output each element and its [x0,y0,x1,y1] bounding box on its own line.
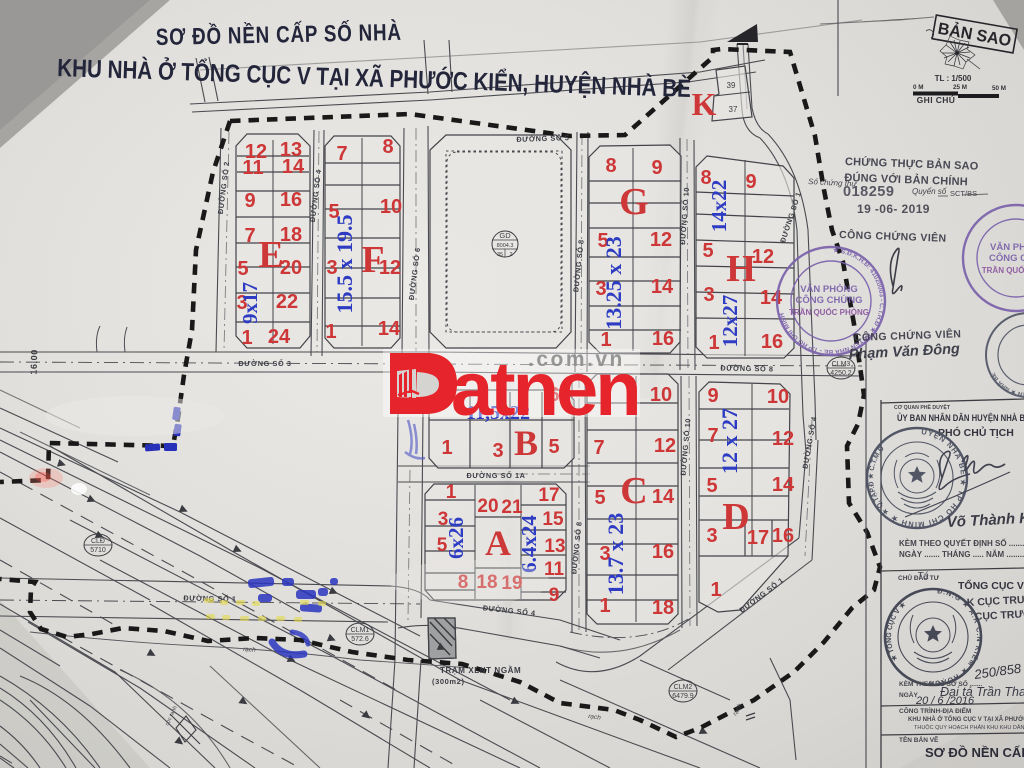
svg-text:CLM3: CLM3 [832,361,851,368]
svg-text:VĂN PHÒNG: VĂN PHÒNG [800,283,858,295]
svg-text:17: 17 [747,527,769,549]
svg-text:5: 5 [702,240,713,262]
svg-text:TỔNG CỤC V: TỔNG CỤC V [958,579,1024,592]
svg-text:TRẦN QUỐC PHÒNG: TRẦN QUỐC PHÒNG [789,307,869,317]
svg-text:8: 8 [605,155,616,177]
svg-text:E: E [258,234,283,276]
svg-text:3: 3 [703,284,714,306]
svg-text:SƠ ĐỒ NỀN CẤP SỐ NHÀ: SƠ ĐỒ NỀN CẤP SỐ NHÀ [156,18,403,50]
svg-text:9: 9 [651,157,662,179]
svg-text:16: 16 [280,189,302,211]
svg-text:CLĐ: CLĐ [91,538,105,545]
svg-text:8: 8 [382,136,393,158]
svg-text:12: 12 [772,428,794,450]
svg-text:0 M: 0 M [913,84,924,91]
svg-text:13.7 x 23: 13.7 x 23 [603,513,628,596]
svg-text:10: 10 [380,196,402,218]
svg-text:2: 2 [509,252,512,258]
svg-text:G: G [619,181,649,223]
svg-text:6x26: 6x26 [444,517,468,559]
svg-text:14: 14 [772,474,795,496]
svg-text:TRẠM XLNT NGẦM: TRẠM XLNT NGẦM [440,665,521,675]
svg-text:TRẦN QUỐC: TRẦN QUỐC [982,265,1024,275]
svg-text:5: 5 [548,436,559,458]
svg-text:18: 18 [652,597,674,619]
svg-text:12: 12 [654,435,676,457]
svg-text:CÔNG C: CÔNG C [989,252,1024,264]
svg-text:CLM1: CLM1 [351,627,370,634]
svg-text:9: 9 [707,385,718,407]
svg-text:6.4x24: 6.4x24 [517,515,541,573]
svg-text:9: 9 [549,585,560,606]
svg-text:4250.2: 4250.2 [830,370,852,377]
svg-text:17: 17 [538,485,559,506]
svg-text:9: 9 [244,190,255,212]
svg-text:19 -06- 2019: 19 -06- 2019 [857,202,930,216]
svg-text:ĐƯỜNG SỐ 1A: ĐƯỜNG SỐ 1A [466,470,525,480]
svg-text:KHU NHÀ Ở TỔNG CỤC V TẠI XÃ PH: KHU NHÀ Ở TỔNG CỤC V TẠI XÃ PHƯỚC KIỂ [908,715,1024,723]
svg-text:6479.9: 6479.9 [672,693,694,700]
svg-text:PHÓ CHỦ TỊCH: PHÓ CHỦ TỊCH [938,426,1014,439]
svg-text:5710: 5710 [90,547,106,554]
svg-text:1: 1 [241,327,252,349]
svg-text:7: 7 [336,143,347,165]
svg-text:D: D [722,496,749,538]
svg-text:572.6: 572.6 [351,636,369,643]
svg-text:GD: GD [499,231,511,240]
svg-text:CƠ QUAN PHÊ DUYỆT: CƠ QUAN PHÊ DUYỆT [894,403,951,411]
svg-text:14: 14 [651,276,674,298]
svg-text:12: 12 [650,229,672,251]
svg-text:16: 16 [772,525,794,547]
svg-text:(300m2): (300m2) [432,677,465,686]
svg-text:37: 37 [729,105,738,114]
svg-text:ĐƯỜNG SỐ 5: ĐƯỜNG SỐ 5 [516,132,569,144]
svg-text:24: 24 [268,326,291,348]
svg-text:H: H [726,248,756,290]
svg-text:14: 14 [760,287,783,309]
svg-text:9x17: 9x17 [238,282,262,324]
svg-text:SƠ ĐỒ NỀN CẤP SỐ: SƠ ĐỒ NỀN CẤP SỐ [925,745,1024,760]
svg-text:TL : 1/500: TL : 1/500 [935,74,972,83]
svg-text:C: C [620,470,647,512]
svg-text:14: 14 [378,318,401,340]
svg-text:16: 16 [652,541,674,563]
svg-text:1: 1 [441,437,452,459]
svg-text:CLM2: CLM2 [674,684,693,691]
svg-text:10: 10 [767,386,789,408]
svg-text:14: 14 [282,156,305,178]
svg-text:20: 20 [477,496,498,517]
svg-text:39: 39 [727,81,736,90]
svg-text:5: 5 [237,258,248,280]
svg-text:THUỘC QUY HOẠCH PHÂN KHU KHU D: THUỘC QUY HOẠCH PHÂN KHU KHU DÂN CƯ X.P … [914,724,1024,731]
svg-text:TÊN BẢN VẼ: TÊN BẢN VẼ [899,735,939,744]
svg-text:12x27: 12x27 [718,295,742,348]
svg-text:22: 22 [276,291,298,313]
svg-text:F: F [361,239,384,281]
svg-text:SCT/BS: SCT/BS [950,189,977,198]
svg-text:018259: 018259 [843,184,894,200]
svg-text:VĂN PH: VĂN PH [990,242,1024,253]
svg-text:9: 9 [745,171,756,193]
svg-text:Quyển số: Quyển số [912,187,948,196]
svg-text:13.25 x 23: 13.25 x 23 [601,236,626,330]
svg-text:1: 1 [325,321,336,343]
svg-text:13: 13 [544,536,565,557]
svg-text:1: 1 [446,482,457,503]
svg-text:3: 3 [492,440,503,462]
svg-text:14: 14 [652,486,675,508]
svg-text:50 M: 50 M [992,85,1006,92]
svg-text:7: 7 [244,225,255,247]
svg-text:Tá: Tá [917,571,929,582]
svg-text:3: 3 [706,525,717,547]
svg-text:K: K [692,86,717,122]
svg-text:KÈM THEO QUYẾT ĐỊNH SỐ .......: KÈM THEO QUYẾT ĐỊNH SỐ .............. [899,538,1024,548]
svg-text:7: 7 [593,437,604,459]
svg-text:16: 16 [761,331,783,353]
svg-text:ĐƯỜNG SỐ 3: ĐƯỜNG SỐ 3 [238,358,291,368]
svg-text:NGÀY ....... THÁNG ..... NĂM .: NGÀY ....... THÁNG ..... NĂM ........ [899,550,1024,559]
svg-text:21: 21 [501,497,523,518]
svg-text:15: 15 [542,509,564,530]
svg-text:11: 11 [242,157,263,179]
svg-text:16: 16 [652,328,674,350]
svg-text:25 M: 25 M [953,84,967,91]
svg-text:16.00: 16.00 [29,349,40,375]
svg-text:CÔNG TRÌNH-ĐỊA ĐIỂM: CÔNG TRÌNH-ĐỊA ĐIỂM [899,706,971,715]
svg-text:12 x 27: 12 x 27 [717,408,742,474]
svg-text:5: 5 [594,487,605,509]
svg-text:5: 5 [706,475,717,497]
svg-text:15.5 x 19.5: 15.5 x 19.5 [332,215,357,314]
svg-text:1: 1 [710,579,721,601]
svg-text:GHI CHÚ: GHI CHÚ [917,94,956,105]
svg-text:A: A [485,523,511,563]
svg-text:CÔNG CHỨNG: CÔNG CHỨNG [796,294,863,306]
svg-text:8004.3: 8004.3 [497,243,514,249]
svg-text:10: 10 [650,384,672,406]
svg-text:ỦY BAN NHÂN DÂN HUYỆN NHÀ B: ỦY BAN NHÂN DÂN HUYỆN NHÀ B [897,412,1024,424]
svg-text:14x22: 14x22 [707,180,731,233]
svg-text:1: 1 [599,595,610,617]
svg-text:rạch: rạch [243,646,256,654]
svg-text:35: 35 [497,252,503,258]
svg-text:ĐƯỜNG SỐ 8: ĐƯỜNG SỐ 8 [720,363,773,374]
svg-text:atnen: atnen [451,347,639,432]
